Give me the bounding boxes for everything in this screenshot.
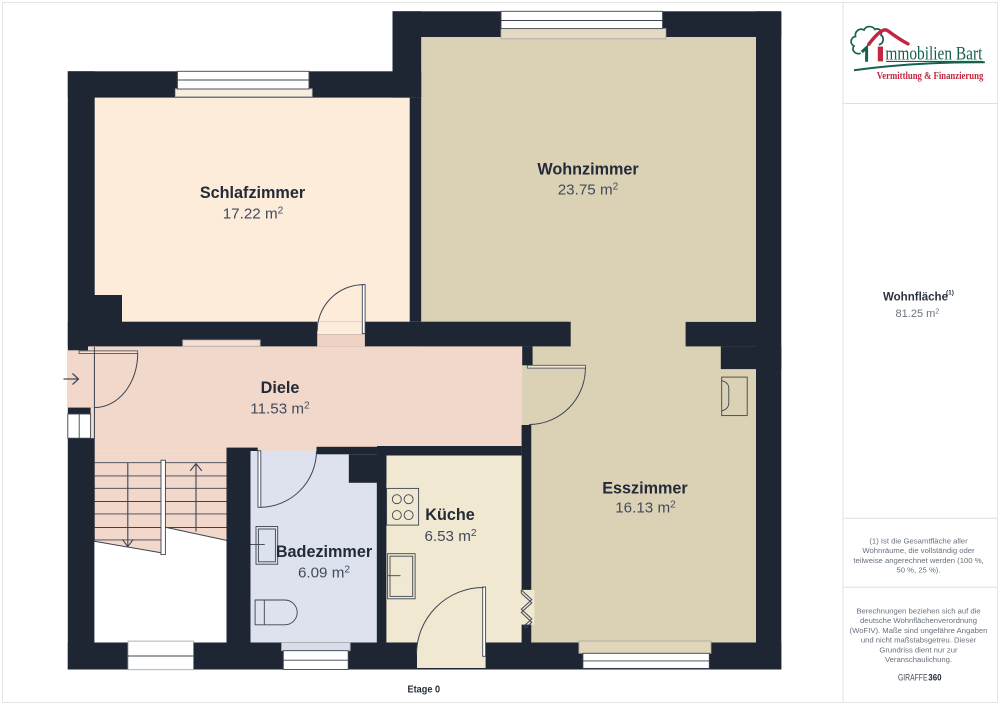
svg-text:Grundriss dient nur zur: Grundriss dient nur zur	[879, 645, 958, 654]
svg-text:50 %, 25 %).: 50 %, 25 %).	[896, 566, 940, 575]
svg-text:Wohnräume, die vollständig ode: Wohnräume, die vollständig oder	[862, 546, 975, 555]
svg-text:Badezimmer: Badezimmer	[276, 543, 373, 561]
svg-text:Esszimmer: Esszimmer	[602, 480, 688, 498]
svg-text:Schlafzimmer: Schlafzimmer	[200, 184, 306, 202]
svg-text:Etage 0: Etage 0	[408, 684, 441, 696]
svg-text:17.22 m2: 17.22 m2	[223, 206, 284, 223]
svg-text:Wohnfläche: Wohnfläche	[883, 292, 948, 304]
svg-text:Diele: Diele	[261, 379, 300, 397]
svg-text:81.25 m2: 81.25 m2	[896, 307, 940, 321]
svg-text:Berechnungen beziehen sich auf: Berechnungen beziehen sich auf die	[856, 607, 980, 616]
svg-text:Wohnzimmer: Wohnzimmer	[537, 161, 639, 179]
svg-text:und nicht maßstabsgetreu. Dies: und nicht maßstabsgetreu. Dieser	[861, 636, 977, 645]
svg-text:Küche: Küche	[425, 506, 474, 524]
svg-text:16.13 m2: 16.13 m2	[615, 500, 676, 517]
svg-text:360: 360	[928, 673, 941, 683]
svg-text:(1): (1)	[946, 290, 954, 297]
svg-text:GIRAFFE: GIRAFFE	[898, 673, 928, 683]
svg-text:Vermittlung & Finanzierung: Vermittlung & Finanzierung	[877, 71, 984, 82]
svg-text:Veranschaulichung.: Veranschaulichung.	[885, 655, 952, 664]
svg-text:teilweise angerechnet werden (: teilweise angerechnet werden (100 %,	[853, 556, 983, 565]
svg-text:(WoFIV). Maße sind ungefähre A: (WoFIV). Maße sind ungefähre Angaben	[850, 626, 988, 635]
svg-text:6.09 m2: 6.09 m2	[298, 564, 350, 581]
svg-text:(1) Ist die Gesamtfläche aller: (1) Ist die Gesamtfläche aller	[869, 537, 968, 546]
svg-text:11.53 m2: 11.53 m2	[250, 401, 310, 418]
svg-text:6.53 m2: 6.53 m2	[424, 528, 476, 545]
svg-text:23.75 m2: 23.75 m2	[558, 182, 619, 199]
svg-text:deutsche Wohnflächenverordnung: deutsche Wohnflächenverordnung	[860, 616, 977, 625]
